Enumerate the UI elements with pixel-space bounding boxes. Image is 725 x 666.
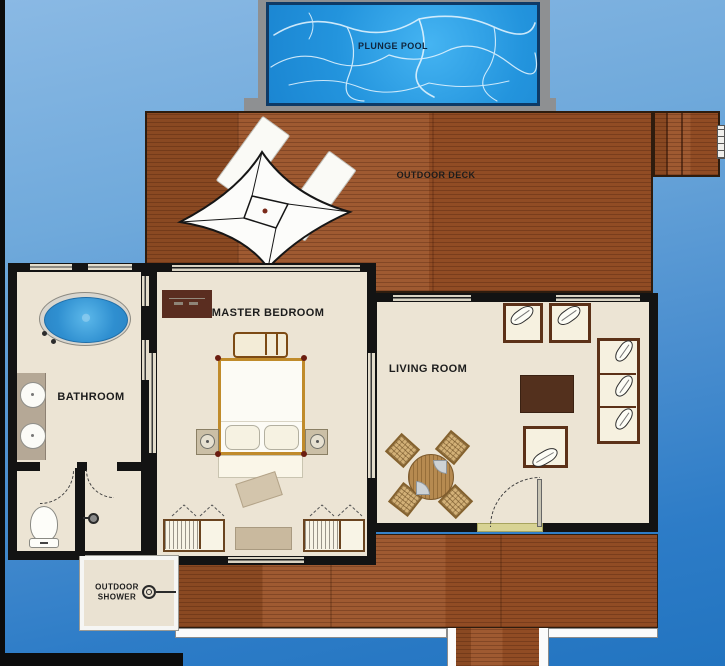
outdoor-deck-label: OUTDOOR DECK xyxy=(397,170,476,180)
bed-post xyxy=(301,451,307,457)
plunge-pool xyxy=(266,2,540,106)
bench-icon xyxy=(235,527,292,550)
deck-jetty xyxy=(653,111,720,177)
bottom-edge-strip xyxy=(0,653,183,666)
wardrobe-icon xyxy=(163,519,225,552)
sofa-icon xyxy=(597,338,640,444)
fan-icon xyxy=(200,434,215,449)
left-edge-strip xyxy=(0,0,5,666)
place-setting xyxy=(433,460,447,474)
wardrobe-icon xyxy=(303,519,365,552)
armchair-icon xyxy=(549,303,591,343)
deck-edge-white xyxy=(175,628,447,638)
deck-edge-white xyxy=(548,628,658,638)
wall xyxy=(75,468,85,556)
bed-icon xyxy=(218,358,305,455)
jetty-joint xyxy=(666,113,668,175)
toilet-icon xyxy=(30,506,58,542)
bed-post xyxy=(301,355,307,361)
wall xyxy=(117,462,150,471)
rear-deck-joint xyxy=(500,535,502,627)
floor-plan: PLUNGE POOL OUTDOOR DECK OUTDOOR SHOWER xyxy=(0,0,725,666)
shower-head-icon xyxy=(142,585,156,599)
outdoor-shower-label: OUTDOOR SHOWER xyxy=(86,582,148,601)
bed-post xyxy=(215,451,221,457)
bed-post xyxy=(215,355,221,361)
place-setting xyxy=(416,481,430,495)
fan-icon xyxy=(310,434,325,449)
shower-arm xyxy=(156,591,176,593)
sliding-door xyxy=(172,265,360,271)
sink-icon xyxy=(20,423,46,449)
window xyxy=(142,276,149,306)
toilet-tank xyxy=(29,538,59,548)
hanger-marks xyxy=(306,502,366,518)
armchair-icon xyxy=(523,426,568,468)
bed-pillow xyxy=(225,425,260,450)
rear-walkway xyxy=(456,628,539,666)
coffee-table-icon xyxy=(520,375,574,413)
tub-faucet xyxy=(51,339,56,344)
jetty-joint xyxy=(681,113,683,175)
armchair-icon xyxy=(503,303,543,343)
sink-icon xyxy=(20,382,46,408)
tub-faucet xyxy=(42,331,47,336)
window xyxy=(368,353,375,478)
bed-pillow xyxy=(264,425,299,450)
shower-arm xyxy=(83,517,89,519)
pool-caustics xyxy=(269,5,537,103)
deck-steps-icon xyxy=(717,125,725,159)
living-room-label: LIVING ROOM xyxy=(389,363,467,375)
plunge-pool-label: PLUNGE POOL xyxy=(358,41,428,51)
window xyxy=(142,340,149,380)
window xyxy=(30,264,72,270)
nightstand-icon xyxy=(305,429,328,455)
dresser-icon xyxy=(162,290,212,318)
sliding-door xyxy=(228,557,304,563)
dining-table-icon xyxy=(408,454,454,500)
window xyxy=(88,264,132,270)
shower-head-icon xyxy=(88,513,99,524)
walkway-edge-white xyxy=(539,628,549,666)
master-bedroom-label: MASTER BEDROOM xyxy=(212,307,325,319)
bench-icon xyxy=(233,332,288,358)
bathtub-icon xyxy=(39,292,131,346)
door-leaf xyxy=(537,479,542,527)
window xyxy=(149,353,156,453)
sliding-door xyxy=(393,295,471,301)
bathroom-label: BATHROOM xyxy=(57,391,124,403)
wall xyxy=(8,462,40,471)
sliding-door xyxy=(556,295,640,301)
hanger-marks xyxy=(168,502,228,518)
deck-plank-joint xyxy=(432,113,434,291)
